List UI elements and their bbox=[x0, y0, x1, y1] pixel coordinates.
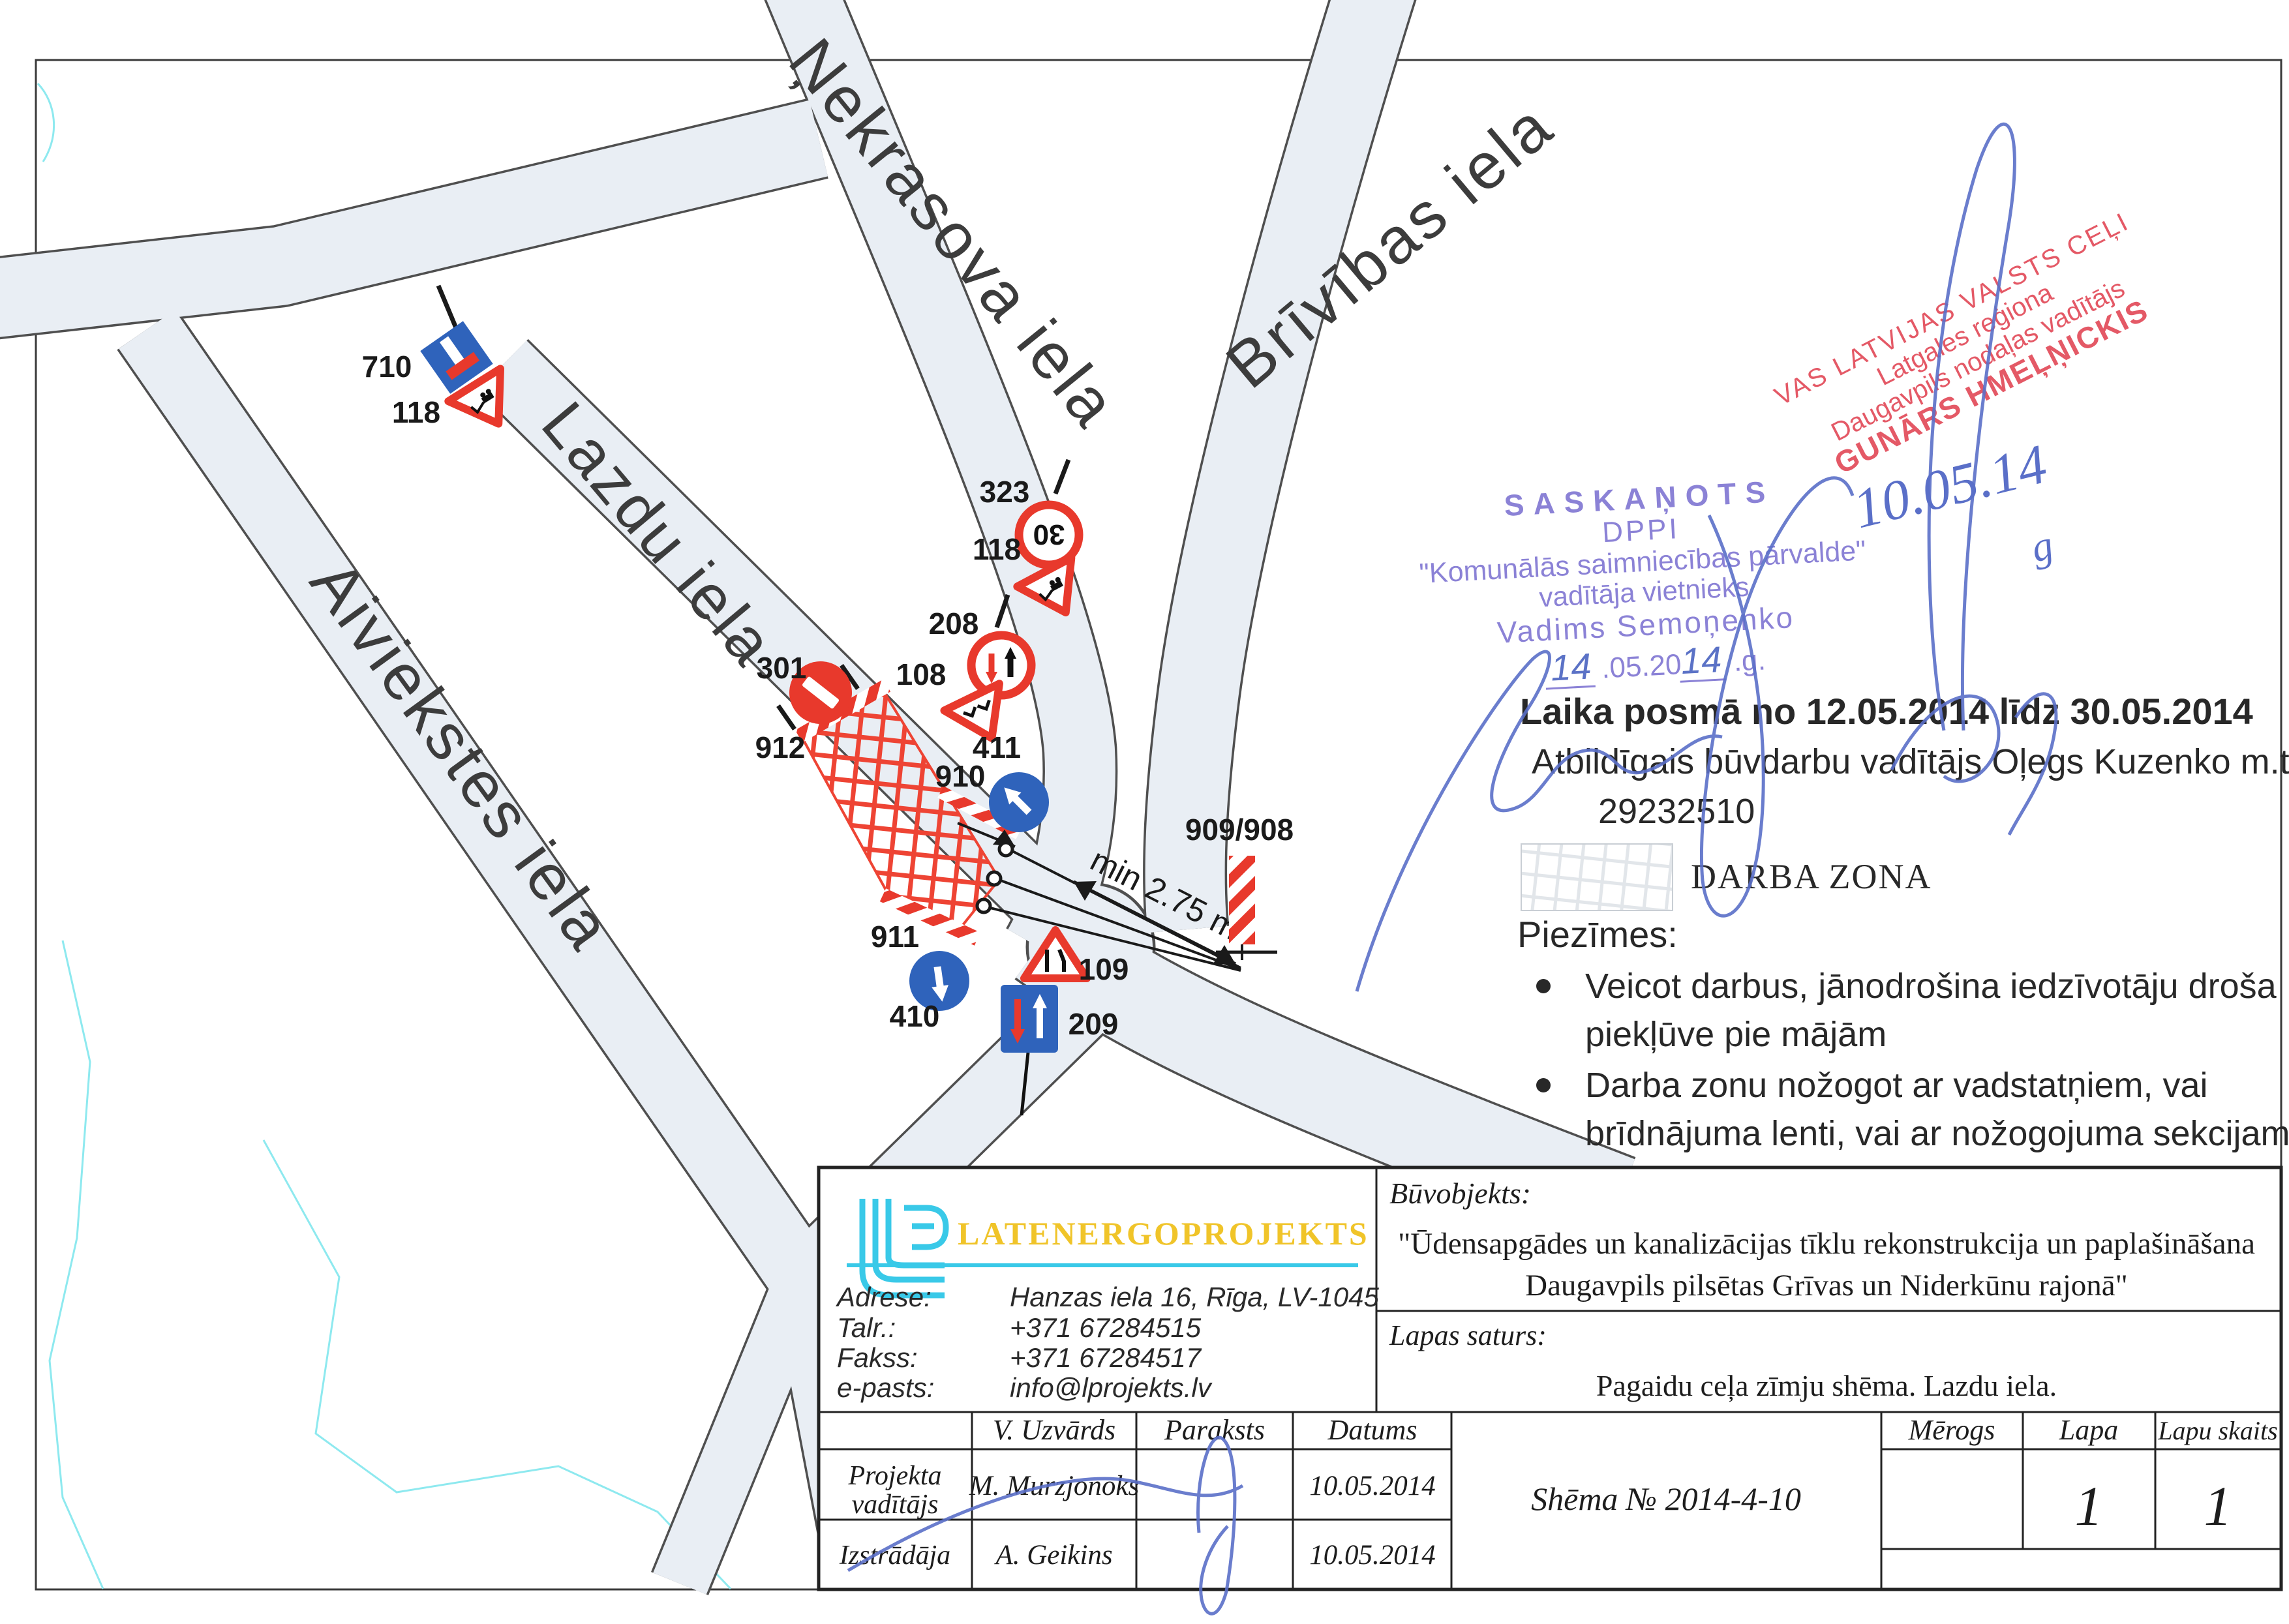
guide-post-icon bbox=[988, 872, 1001, 885]
note-bullet2-line2: brīdnājuma lenti, vai ar nožogojuma sekc… bbox=[1585, 1114, 2289, 1153]
lapu-skaits-header: Lapu skaits bbox=[2157, 1416, 2277, 1445]
handwritten-date-flourish: g bbox=[2026, 521, 2057, 571]
drawing-sheet: Ņekrasova iela Brīvības iela Lazdu iela … bbox=[0, 0, 2289, 1624]
lapas-saturs-label: Lapas saturs: bbox=[1389, 1319, 1547, 1351]
notes-block: Laika posmā no 12.05.2014 līdz 30.05.201… bbox=[1517, 691, 2289, 1153]
col-header-datums: Datums bbox=[1327, 1414, 1417, 1446]
merogs-header: Mērogs bbox=[1908, 1414, 1995, 1446]
sign-label-910: 910 bbox=[935, 759, 986, 793]
contour-line bbox=[50, 940, 103, 1589]
note-bullet1-line2: piekļūve pie mājām bbox=[1585, 1015, 1887, 1054]
row1-role-line2: vadītājs bbox=[852, 1490, 939, 1520]
note-bullet2-line1: Darba zonu nožogot ar vadstatņiem, vai bbox=[1585, 1066, 2208, 1105]
striped-post-icon bbox=[1229, 856, 1255, 944]
guide-post-icon bbox=[999, 843, 1012, 856]
work-zone-legend-swatch bbox=[1521, 844, 1673, 910]
notes-phone: 29232510 bbox=[1598, 792, 1755, 831]
fakss-label: Fakss: bbox=[837, 1342, 918, 1373]
contour-line bbox=[38, 83, 54, 162]
sign-label-909-908: 909/908 bbox=[1185, 813, 1294, 847]
road-top bbox=[0, 138, 819, 299]
bullet-icon bbox=[1536, 979, 1551, 993]
sign-label-911: 911 bbox=[871, 920, 919, 954]
lapa-value: 1 bbox=[2075, 1475, 2103, 1537]
notes-heading: Piezīmes: bbox=[1517, 914, 1678, 955]
talr-value: +371 67284515 bbox=[1010, 1312, 1202, 1343]
shema-number: Shēma № 2014-4-10 bbox=[1531, 1481, 1801, 1517]
sign-323-value: 30 bbox=[1033, 519, 1065, 550]
sign-label-710: 710 bbox=[362, 350, 412, 383]
row1-role-line1: Projekta bbox=[847, 1461, 941, 1491]
stamp-purple-date-day: 14 bbox=[1550, 645, 1593, 688]
lapa-header: Lapa bbox=[2059, 1414, 2118, 1446]
notes-period: Laika posmā no 12.05.2014 līdz 30.05.201… bbox=[1520, 691, 2253, 732]
epasts-label: e-pasts: bbox=[837, 1372, 934, 1403]
road-brivibas bbox=[1185, 0, 1382, 929]
notes-responsible: Atbildīgais būvdarbu vadītājs Oļegs Kuze… bbox=[1532, 742, 2289, 781]
buvobjekts-line2: Daugavpils pilsētas Grīvas un Niderkūnu … bbox=[1525, 1269, 2128, 1302]
guide-post-icon bbox=[977, 899, 990, 912]
company-name: LATENERGOPROJEKTS bbox=[958, 1215, 1369, 1252]
fakss-value: +371 67284517 bbox=[1010, 1342, 1202, 1373]
sign-label-209: 209 bbox=[1069, 1007, 1119, 1041]
epasts-value: info@lprojekts.lv bbox=[1010, 1372, 1213, 1403]
note-bullet1-line1: Veicot darbus, jānodrošina iedzīvotāju d… bbox=[1585, 967, 2277, 1006]
sign-label-410: 410 bbox=[890, 999, 940, 1033]
buvobjekts-label: Būvobjekts: bbox=[1389, 1177, 1531, 1210]
adrese-label: Adrese: bbox=[835, 1282, 932, 1312]
stamp-approval-purple: SASKAŅOTS DPPI "Komunālās saimniecības p… bbox=[1415, 470, 1872, 695]
stamp-purple-date-month: .05.20 bbox=[1601, 648, 1682, 684]
buvobjekts-line1: "Ūdensapgādes un kanalizācijas tīklu rek… bbox=[1398, 1227, 2255, 1261]
sign-label-912: 912 bbox=[755, 730, 806, 764]
sign-label-323: 323 bbox=[980, 475, 1030, 509]
talr-label: Talr.: bbox=[837, 1312, 896, 1343]
row1-date: 10.05.2014 bbox=[1309, 1471, 1436, 1501]
stamp-purple-line2: DPPI bbox=[1601, 513, 1680, 549]
contour-line bbox=[264, 1140, 731, 1589]
bullet-icon bbox=[1536, 1078, 1551, 1092]
row1-name: M. Murzjonoks bbox=[969, 1471, 1139, 1501]
sign-411-pass-right-icon bbox=[989, 772, 1049, 832]
sign-label-118a: 118 bbox=[392, 395, 440, 429]
title-block: LATENERGOPROJEKTS Adrese: Hanzas iela 16… bbox=[819, 1167, 2281, 1614]
street-label-lazdu: Lazdu iela bbox=[528, 388, 789, 680]
sign-label-109: 109 bbox=[1079, 952, 1129, 986]
sign-label-108: 108 bbox=[896, 657, 947, 691]
sign-label-208: 208 bbox=[929, 607, 979, 640]
street-label-aiviekstes: Aiviekstes iela bbox=[296, 547, 627, 964]
sign-label-118b: 118 bbox=[973, 532, 1021, 566]
row2-name: A. Geikins bbox=[993, 1540, 1112, 1571]
adrese-value: Hanzas iela 16, Rīga, LV-1045 bbox=[1010, 1282, 1379, 1312]
col-header-uzvards: V. Uzvārds bbox=[993, 1414, 1115, 1446]
lapu-skaits-value: 1 bbox=[2204, 1475, 2232, 1537]
stamp-purple-date-year: 14 bbox=[1680, 639, 1723, 682]
row2-date: 10.05.2014 bbox=[1309, 1540, 1436, 1571]
work-zone-legend-label: DARBA ZONA bbox=[1691, 857, 1932, 896]
map-svg: Ņekrasova iela Brīvības iela Lazdu iela … bbox=[0, 0, 2289, 1624]
sign-label-301: 301 bbox=[757, 651, 807, 685]
lapas-saturs-content: Pagaidu ceļa zīmju shēma. Lazdu iela. bbox=[1596, 1369, 2057, 1402]
